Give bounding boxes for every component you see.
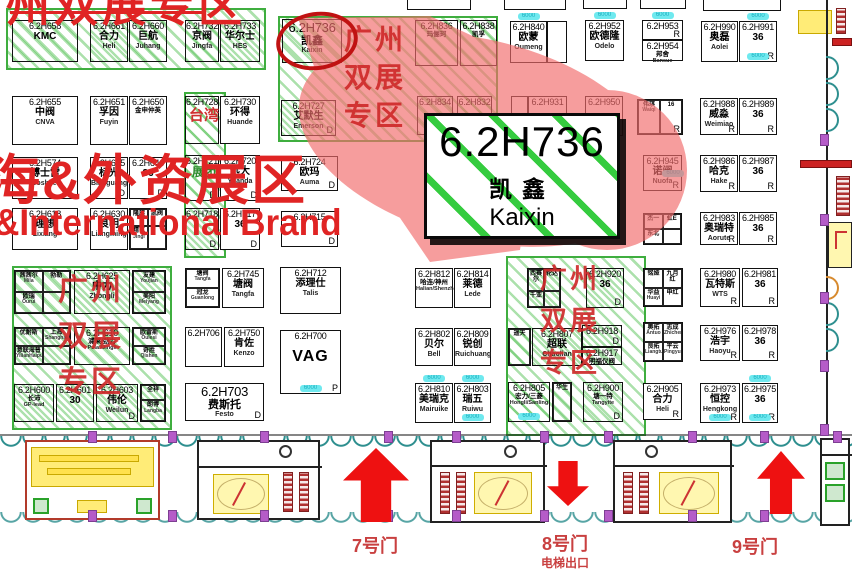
booth-name-cn: 凯孚 xyxy=(461,32,496,39)
escalator-hall xyxy=(25,440,160,520)
booth-code: 6.2H989 xyxy=(740,100,776,109)
booth-6.2H954: 6.2H954邦舍Bansue xyxy=(642,40,683,61)
highlight-booth-name-en: Kaixin xyxy=(427,204,617,232)
booth-hall-marker: R xyxy=(729,125,736,134)
booth-cluster-52: 欧雷斯Oulesi奇胜Qishen xyxy=(132,327,166,365)
booth-6.2H700: 6.2H700VAGP6000 xyxy=(280,330,341,394)
aisle-number-badge: 6000 xyxy=(747,53,769,60)
booth-cluster-79: 铭娅九月红华益Huayi申红 xyxy=(643,268,683,307)
booth-partial xyxy=(583,0,627,9)
aisle-number-badge: 6000 xyxy=(300,385,322,392)
booth-code: 6.2H987 xyxy=(740,157,776,166)
booth-name-en: HES xyxy=(221,43,259,50)
booth-hall-marker: R xyxy=(768,182,775,191)
booth-name-cn: 添理仕 xyxy=(281,279,340,290)
gate-arrow-up-icon xyxy=(757,451,805,514)
booth-name-cn: 欧德隆 xyxy=(586,32,623,43)
booth-name-cn: 美瑞克 xyxy=(416,395,452,406)
booth-name-cn: 京阀 xyxy=(186,32,218,43)
column xyxy=(168,431,177,443)
column xyxy=(540,431,549,443)
booth-name-en: Juhang xyxy=(130,43,166,50)
booth-6.2H706: 6.2H706 xyxy=(185,327,222,367)
booth-6.2H953: 6.2H953R6000 xyxy=(642,20,683,40)
booth-name-en: Heli xyxy=(91,43,127,50)
booth-cluster-57: 塘阀Tangfa冠龙Guanlong xyxy=(185,268,220,308)
booth-6.2H991: 6.2H99136R60006000 xyxy=(739,21,777,62)
highlight-booth-name-cn: 凯鑫 xyxy=(427,170,617,204)
booth-cell: 九月红 xyxy=(663,269,682,288)
booth-partial xyxy=(407,0,471,10)
aisle-number-badge: 6000 xyxy=(462,414,484,421)
aisle-number-badge: 6000 xyxy=(518,413,540,420)
booth-cell: 全祥 xyxy=(141,385,165,400)
red-bar xyxy=(832,38,852,46)
booth-name-cn: 环得 xyxy=(221,108,259,119)
booth-cell: 美阳Meiyang xyxy=(133,292,165,313)
booth-cluster-82: 奥拓Antuo志成Zhicheng良拓Liangtuo平云Pingyun xyxy=(643,322,683,362)
booth-6.2H945: 6.2H945诺阀NuofaR6000 xyxy=(643,155,682,191)
booth-cell: 奥拓Antuo xyxy=(644,323,663,342)
booth-name-en: Tangfa xyxy=(223,291,263,298)
booth-cell: 申红 xyxy=(663,288,682,306)
zone-title-top: 州双展专区 xyxy=(6,0,246,34)
booth-hall-marker: R xyxy=(731,351,738,360)
booth-name-cn: 36 xyxy=(743,280,777,291)
booth-name-en: Jingfa xyxy=(186,43,218,50)
booth-code: 6.2H834 xyxy=(418,98,452,107)
booth-cell: 冠龙Guanlong xyxy=(186,288,219,307)
booth-hall-marker: D xyxy=(614,412,621,421)
aisle-number-badge: 6000 xyxy=(662,170,684,177)
booth-cell xyxy=(663,229,682,244)
booth-name-cn: 塘阀 xyxy=(223,280,263,291)
booth-name-cn: 36 xyxy=(743,337,777,348)
booth-6.2H712: 6.2H712添理仕Talis xyxy=(280,267,341,314)
booth-hall-marker: R xyxy=(731,297,738,306)
booth-hall-marker: R xyxy=(729,182,736,191)
booth-cell: 茜茜尔Mila xyxy=(15,271,43,292)
booth-code: 6.2H703 xyxy=(186,385,263,399)
column xyxy=(760,431,769,443)
column xyxy=(760,510,769,522)
booth-cell: 华益Huayi xyxy=(644,288,663,306)
zone-title-underline xyxy=(10,11,202,14)
booth-code: 6.2H975 xyxy=(743,385,777,394)
booth-name-cn: 瑞五 xyxy=(455,395,490,406)
aisle-number-badge: 6000 xyxy=(749,414,771,421)
booth-name-en: Kenzo xyxy=(225,350,263,357)
gate-label-9号门: 9号门 xyxy=(710,537,800,559)
booth-name-en: Bansue xyxy=(643,59,682,65)
aisle-number-badge: 6000 xyxy=(747,13,769,20)
booth-name-cn: 肯佐 xyxy=(225,339,263,350)
zone-guangzhou-left-label: 广州双展专区 xyxy=(58,276,124,414)
room-right xyxy=(828,222,852,268)
booth-cell: 奇胜Qishen xyxy=(133,346,165,364)
column xyxy=(168,510,177,522)
column xyxy=(688,510,697,522)
booth-name-cn: 合力 xyxy=(91,32,127,43)
booth-cluster-26: 伟琪Waiqi16R xyxy=(637,99,683,135)
booth-cell: 欧瑞Ourui xyxy=(15,292,43,313)
booth-name-en: Fuyin xyxy=(91,119,127,126)
highlight-booth-code: 6.2H736 xyxy=(427,118,617,166)
booth-hall-marker: D xyxy=(129,412,136,421)
column xyxy=(540,510,549,522)
booth-hall-marker: R xyxy=(769,351,776,360)
booth-cell: 优耐斯 xyxy=(15,328,43,346)
booth-cell: 东北 xyxy=(644,229,663,244)
aisle-number-badge: 6000 xyxy=(462,375,484,382)
booth-name-cn: 哈克 xyxy=(701,167,737,178)
column xyxy=(452,431,461,443)
booth-hall-marker: R xyxy=(674,125,681,134)
booth-cell: 平云Pingyun xyxy=(663,342,682,361)
elevator-shaft xyxy=(820,438,850,526)
booth-6.2H750: 6.2H750肯佐Kenzo xyxy=(224,327,264,367)
gate-sublabel: 电梯出口 xyxy=(505,556,625,570)
gate-arrow-down-icon xyxy=(547,461,589,506)
booth-partial xyxy=(504,0,566,10)
booth-hall-marker: P xyxy=(332,384,338,393)
booth-name-en: Tangyite xyxy=(584,401,622,407)
highlight-callout: 6.2H736 凯鑫 Kaixin xyxy=(424,113,620,239)
booth-code: 6.2H985 xyxy=(740,214,776,223)
booth-6.2H809: 6.2H809锐创Ruichuang xyxy=(454,328,491,366)
booth-cell: 塘阀Tangfa xyxy=(186,269,219,288)
aisle-number-badge: 6000 xyxy=(749,375,771,382)
booth-name-en: Mairuike xyxy=(416,406,452,413)
booth-name-cn: 中阀 xyxy=(13,108,77,119)
aisle-number-badge: 6000 xyxy=(594,12,616,19)
stair-unit xyxy=(613,440,732,523)
booth-6.2H703: 6.2H703费斯托FestoD xyxy=(185,383,264,421)
gate-arrow-up-icon xyxy=(343,448,409,522)
booth-code: 6.2H931 xyxy=(529,98,566,107)
booth-6.2H814: 6.2H814莱德Lede xyxy=(454,268,491,308)
booth-name-en: Huande xyxy=(221,119,259,126)
stair-unit xyxy=(197,440,320,520)
gate-label-8号门: 8号门电梯出口 xyxy=(505,534,625,570)
booth-name-cn: 浩宇 xyxy=(701,337,739,348)
booth-cell: 朗博Langba xyxy=(141,400,165,421)
booth-6.2H976: 6.2H976浩宇HaoyuR xyxy=(700,325,740,361)
booth-name-en: GP-lead xyxy=(15,403,53,409)
booth-6.2H840: 6.2H840欧蒙Oumeng6000 xyxy=(510,21,547,63)
column xyxy=(604,510,613,522)
booth-name-cn: 费斯托 xyxy=(186,400,263,412)
booth-name-en: Ruiwu xyxy=(455,406,490,413)
booth-6.2H952: 6.2H952欧德隆Odelo6000 xyxy=(585,20,624,61)
column xyxy=(260,431,269,443)
booth-cell: 志成Zhicheng xyxy=(663,323,682,342)
column xyxy=(260,510,269,522)
booth-cluster-49: 友建Youjian美阳Meiyang xyxy=(132,270,166,314)
booth-name-cn: 奥磊 xyxy=(702,33,737,44)
booth-6.2H838: 6.2H838凯孚 xyxy=(460,20,497,66)
booth-cell: 伟琪Waiqi xyxy=(638,100,660,134)
booth-name-cn: 金申仲英 xyxy=(130,108,166,115)
booth-code: 6.2H978 xyxy=(743,327,777,336)
booth-6.2H988: 6.2H988威淼WeimiaoR xyxy=(700,98,738,135)
booth-cell: 友建Youjian xyxy=(133,271,165,292)
booth-cell: 良拓Liangtuo xyxy=(644,342,663,361)
booth-hall-marker: R xyxy=(673,410,680,419)
booth-name-cn: VAG xyxy=(281,349,340,366)
booth-name-en: CNVA xyxy=(13,119,77,126)
booth-name-en: Aolei xyxy=(702,44,737,51)
column xyxy=(88,431,97,443)
booth-cell: 铭娅 xyxy=(644,269,663,288)
column xyxy=(688,431,697,443)
booth-name-en: Oumeng xyxy=(511,44,546,51)
booth-6.2H975: 6.2H97536R60006000 xyxy=(742,383,778,423)
booth-name-en: Lede xyxy=(455,291,490,298)
booth-cell: 杰一 xyxy=(644,214,663,229)
booth-6.2H905: 6.2H905合力HeliR xyxy=(643,383,682,420)
booth-cluster-9 xyxy=(547,21,567,63)
booth-6.2H989: 6.2H98936R xyxy=(739,98,777,135)
booth-6.2H802: 6.2H802贝尔Bell xyxy=(415,328,453,366)
booth-hall-marker: D xyxy=(327,126,334,135)
booth-name-cn: 华尔士 xyxy=(221,32,259,43)
booth-name-cn: 锐创 xyxy=(455,340,490,351)
booth-hall-marker: R xyxy=(674,30,681,39)
booth-cell: 意联海普YilianHaipu xyxy=(15,346,43,364)
booth-name-en: Ruichuang xyxy=(455,351,490,358)
booth-name-cn: 莱德 xyxy=(455,280,490,291)
booth-6.2H745: 6.2H745塘阀Tangfa xyxy=(222,268,264,308)
booth-name-en: Talis xyxy=(281,290,340,297)
column xyxy=(384,431,393,443)
booth-code: 6.2H981 xyxy=(743,270,777,279)
booth-name-cn: 威淼 xyxy=(701,110,737,121)
aisle-number-badge: 6000 xyxy=(423,375,445,382)
booth-code: 6.2H700 xyxy=(281,332,340,341)
brand-zone-title-en: &International Brand xyxy=(0,202,342,244)
booth-6.2H836: 6.2H836玛俪珂 xyxy=(415,20,458,66)
red-bar xyxy=(800,160,852,168)
booth-name-cn: 36 xyxy=(740,110,776,121)
booth-name-en: Halian/Shenzhou xyxy=(416,287,452,293)
booth-6.2H803: 6.2H803瑞五Ruiwu60006000 xyxy=(454,383,491,423)
booth-name-cn: 36 xyxy=(740,33,776,44)
booth-name-cn: 瓦特斯 xyxy=(701,280,739,291)
booth-name-cn: 艾默生 xyxy=(282,112,335,123)
booth-partial xyxy=(640,0,686,9)
booth-6.2H987: 6.2H98736R xyxy=(739,155,777,192)
booth-hall-marker: R xyxy=(768,125,775,134)
aisle-number-badge: 6000 xyxy=(709,414,731,421)
booth-code: 6.2H950 xyxy=(586,98,622,107)
booth-6.2H980: 6.2H980瓦特斯WTSR xyxy=(700,268,740,307)
booth-cell: 遥天 xyxy=(509,329,530,365)
booth-name-en: Festo xyxy=(186,411,263,418)
booth-6.2H978: 6.2H97836R xyxy=(742,325,778,361)
booth-hall-marker: D xyxy=(255,411,262,420)
booth-6.2H727: 6.2H727艾默生EmersonD xyxy=(281,100,336,136)
gate-label-7号门: 7号门 xyxy=(330,536,420,558)
booth-cluster-72: 遥天 xyxy=(508,328,531,366)
booth-name-en: Hongli/Sanling xyxy=(509,401,549,407)
booth-hall-marker: R xyxy=(769,297,776,306)
column xyxy=(833,431,842,443)
stair-unit xyxy=(430,440,545,523)
booth-cluster-56: 全祥朗博Langba xyxy=(140,384,166,422)
stairs-right xyxy=(836,176,850,216)
booth-6.2H985: 6.2H98536R xyxy=(739,212,777,245)
booth-6.2H986: 6.2H986哈克HakeR xyxy=(700,155,738,192)
zone-guangzhou-right-label: 广州双展专区 xyxy=(540,266,600,392)
booth-hall-marker: D xyxy=(615,298,622,307)
aisle-number-badge: 6000 xyxy=(518,13,540,20)
booth-hall-marker: R xyxy=(673,181,680,190)
column xyxy=(452,510,461,522)
booth-6.2H990: 6.2H990奥磊Aolei xyxy=(701,21,738,62)
booth-6.2H973: 6.2H973恒控HengkongR6000 xyxy=(700,383,740,423)
booth-6.2H812: 6.2H812哈连/神州Halian/Shenzhou xyxy=(415,268,453,308)
booth-partial xyxy=(703,0,781,11)
corridor-top-wall xyxy=(0,434,852,436)
booth-name-cn: 36 xyxy=(740,167,776,178)
booth-code: 6.2H706 xyxy=(186,329,221,338)
booth-name-en: Bell xyxy=(416,351,452,358)
booth-name-cn: 孚因 xyxy=(91,108,127,119)
booth-name-cn: 合力 xyxy=(644,395,681,406)
booth-name-cn: 贝尔 xyxy=(416,340,452,351)
booth-6.2H981: 6.2H98136R xyxy=(742,268,778,307)
booth-6.2H810: 6.2H810美瑞克Mairuike6000 xyxy=(415,383,453,423)
booth-name-cn: 玛俪珂 xyxy=(416,32,457,39)
booth-code: 6.2H991 xyxy=(740,23,776,32)
booth-name-cn: 恒控 xyxy=(701,395,739,406)
booth-name-cn: 巨航 xyxy=(130,32,166,43)
booth-6.2H600: 6.2H600长沛GP-lead xyxy=(14,384,54,422)
zone-label-0: 台湾 xyxy=(189,108,219,125)
floor-map: 州双展专区 海&外资展区 &International Brand 6.2H73… xyxy=(0,0,852,576)
booth-6.2H983: 6.2H983奥瑞特AoruteR xyxy=(700,212,738,245)
booth-name-cn: KMC xyxy=(13,32,77,43)
booth-cell: 虹E xyxy=(663,214,682,229)
column xyxy=(604,431,613,443)
booth-code: 6.2H832 xyxy=(458,98,491,107)
booth-name-en: Odelo xyxy=(586,43,623,50)
booth-hall-marker: R xyxy=(768,235,775,244)
column xyxy=(88,510,97,522)
booth-name-cn: 欧蒙 xyxy=(511,33,546,44)
booth-cell: 欧雷斯Oulesi xyxy=(133,328,165,346)
booth-hall-marker: D xyxy=(613,337,620,346)
booth-cluster-44: 杰一虹E东北 xyxy=(643,213,682,245)
aisle-number-badge: 6000 xyxy=(652,12,674,19)
booth-hall-marker: D xyxy=(329,181,336,190)
booth-name-cn: 36 xyxy=(743,395,777,406)
booth-hall-marker: R xyxy=(729,235,736,244)
booth-hall-marker: R xyxy=(731,413,738,422)
